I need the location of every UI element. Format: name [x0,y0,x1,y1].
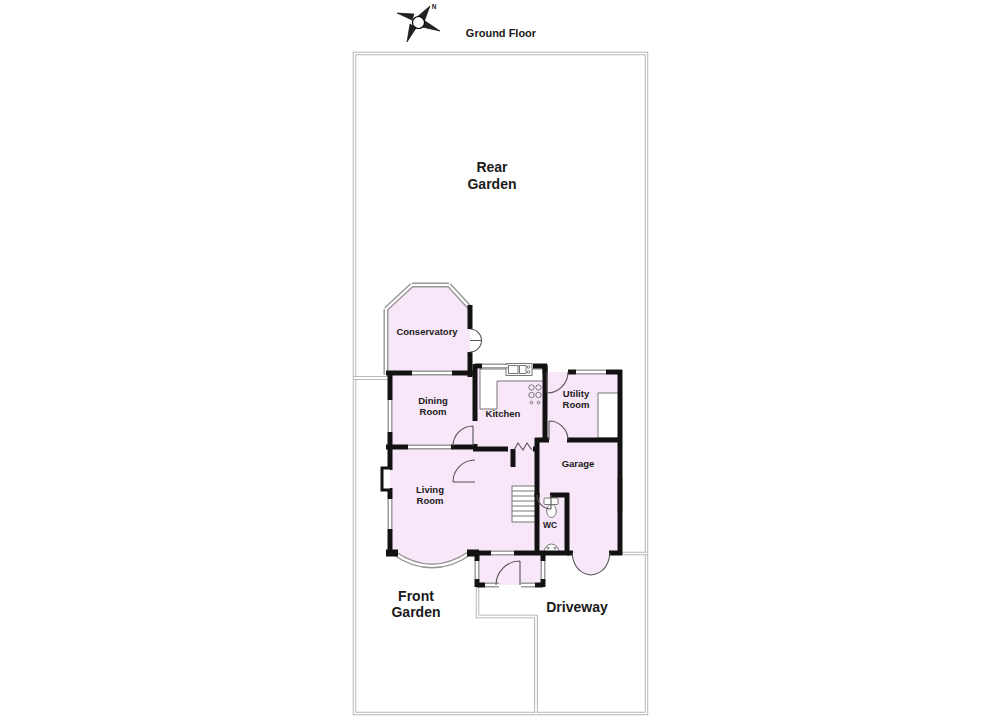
garage-door-swing-fill [572,553,610,575]
area-label-rear-garden-line2: Garden [467,176,516,192]
driveway-divider [478,587,537,713]
room-label-utility-line2: Room [563,399,590,410]
staircase [512,486,537,522]
area-label-front-garden-line2: Garden [391,604,440,620]
chimney-breast [382,468,390,490]
floor-plan-page: N Ground Floor Rear Garden Conservatory … [0,0,1000,727]
compass-north-label: N [432,3,437,10]
area-label-driveway: Driveway [546,599,608,615]
area-label-rear-garden-line1: Rear [476,159,508,175]
room-label-dining-line1: Dining [418,395,448,406]
conservatory-french-doors [470,329,482,352]
utility-cupboard [598,393,619,438]
room-label-utility-line1: Utility [563,388,590,399]
room-label-wc: WC [543,520,557,530]
kitchen-sink [506,364,532,376]
page-title: Ground Floor [466,27,537,39]
area-label-front-garden-line1: Front [398,588,434,604]
compass-icon: N [397,3,440,42]
room-label-kitchen: Kitchen [486,408,521,419]
room-label-conservatory: Conservatory [396,326,458,337]
room-label-garage: Garage [562,458,595,469]
room-label-living-line2: Room [417,495,444,506]
floor-plan: N Ground Floor Rear Garden Conservatory … [0,0,1000,727]
room-label-dining-line2: Room [420,406,447,417]
room-label-living-line1: Living [416,484,444,495]
